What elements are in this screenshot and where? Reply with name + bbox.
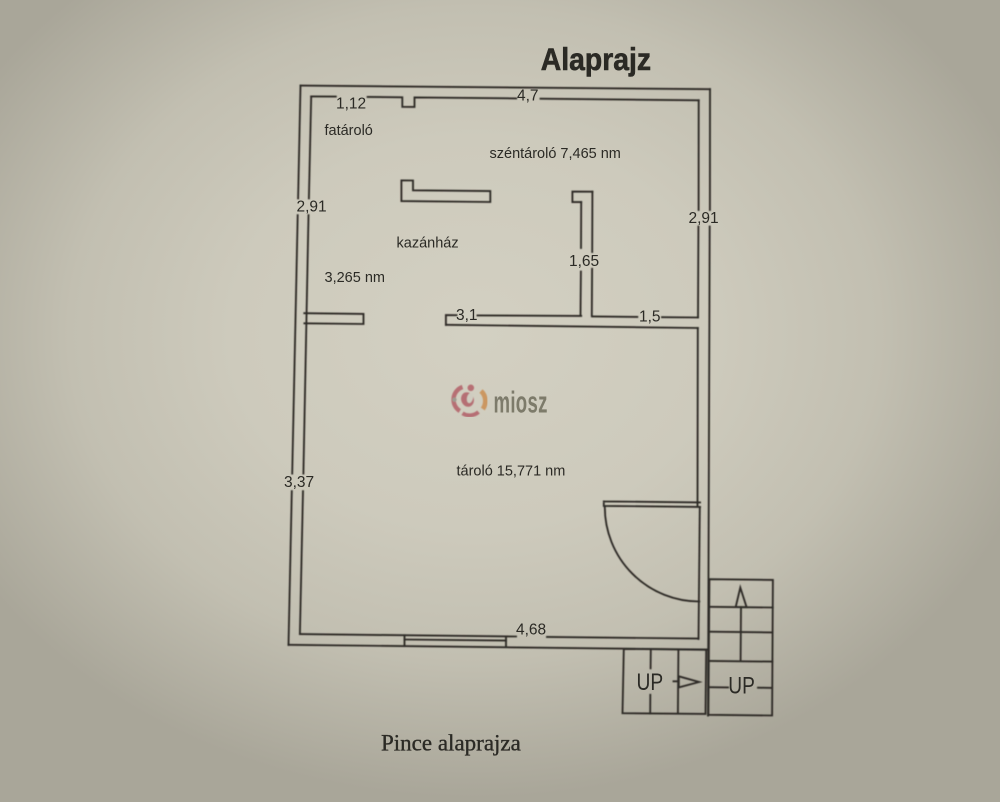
svg-text:4,68: 4,68 <box>516 622 546 639</box>
svg-text:2,91: 2,91 <box>297 199 327 216</box>
svg-text:3,1: 3,1 <box>456 307 478 324</box>
svg-text:fatároló: fatároló <box>325 123 373 139</box>
svg-text:1,5: 1,5 <box>639 309 661 326</box>
svg-text:4,7: 4,7 <box>517 88 539 105</box>
svg-text:3,265 nm: 3,265 nm <box>325 270 385 286</box>
svg-text:1,12: 1,12 <box>336 96 366 113</box>
svg-text:UP: UP <box>728 671 755 699</box>
svg-text:3,37: 3,37 <box>284 474 314 491</box>
svg-text:miosz: miosz <box>494 386 548 420</box>
svg-text:Pince alaprajza: Pince alaprajza <box>381 731 521 756</box>
svg-text:kazánház: kazánház <box>397 236 459 252</box>
svg-text:széntároló 7,465 nm: széntároló 7,465 nm <box>490 146 621 162</box>
svg-text:1,65: 1,65 <box>569 253 599 270</box>
svg-text:2,91: 2,91 <box>689 210 719 227</box>
svg-text:tároló 15,771 nm: tároló 15,771 nm <box>457 464 566 480</box>
svg-text:UP: UP <box>637 668 664 696</box>
svg-text:Alaprajz: Alaprajz <box>541 43 651 78</box>
